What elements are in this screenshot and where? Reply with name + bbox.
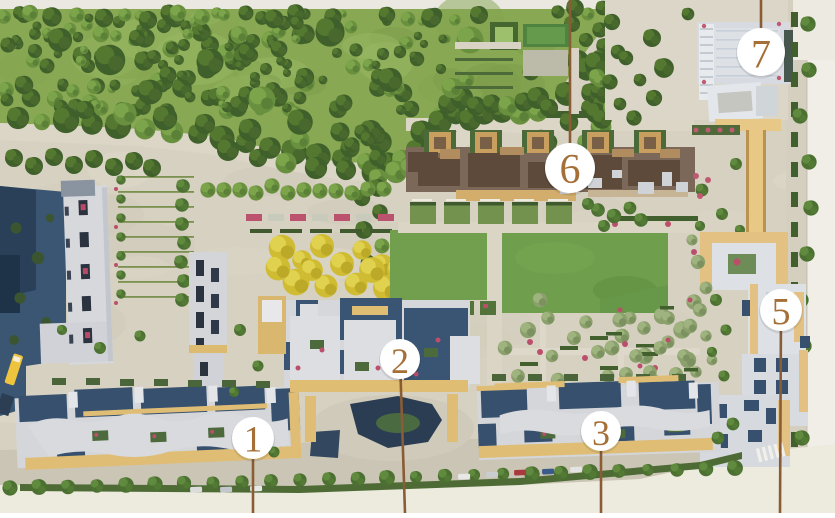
svg-text:5: 5: [772, 291, 791, 333]
svg-text:6: 6: [560, 147, 581, 193]
svg-text:1: 1: [244, 420, 263, 461]
svg-text:7: 7: [751, 32, 771, 77]
svg-text:3: 3: [592, 413, 610, 453]
svg-text:2: 2: [391, 341, 409, 381]
